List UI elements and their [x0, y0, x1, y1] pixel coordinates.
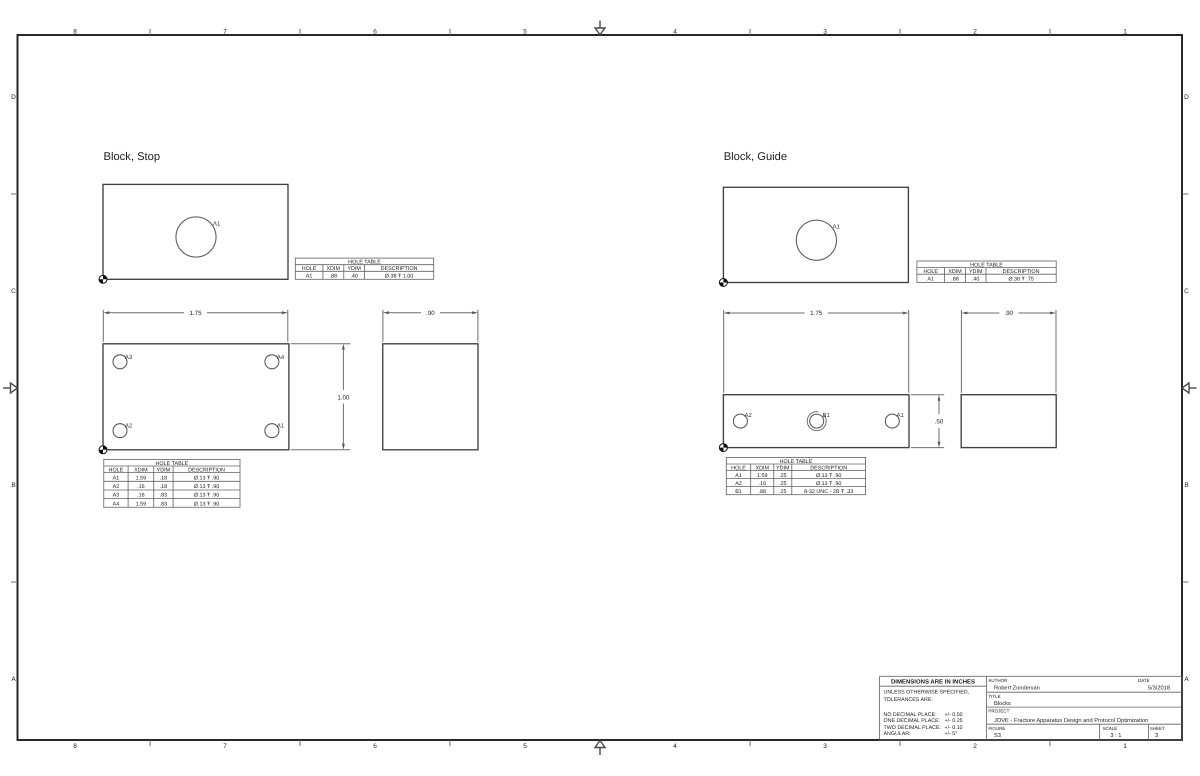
svg-text:A: A — [1184, 676, 1189, 683]
svg-text:+/- 5°: +/- 5° — [945, 731, 958, 737]
svg-text:XDIM: XDIM — [948, 269, 962, 275]
svg-text:Blocks: Blocks — [994, 700, 1011, 707]
svg-text:A1: A1 — [833, 223, 841, 230]
svg-text:A4: A4 — [277, 354, 285, 361]
svg-text:.50: .50 — [935, 419, 944, 426]
svg-text:.40: .40 — [350, 274, 358, 280]
svg-text:.25: .25 — [779, 473, 787, 479]
svg-text:6: 6 — [373, 29, 377, 36]
svg-text:HOLE: HOLE — [923, 269, 938, 275]
svg-text:1: 1 — [1123, 29, 1127, 36]
svg-text:SHEET: SHEET — [1150, 726, 1165, 731]
svg-text:6: 6 — [373, 743, 377, 750]
svg-text:.90: .90 — [426, 310, 435, 317]
svg-text:Ø.13 Ŧ .90: Ø.13 Ŧ .90 — [194, 493, 219, 499]
svg-text:Ø.13 Ŧ .90: Ø.13 Ŧ .90 — [816, 473, 841, 479]
svg-text:1: 1 — [1123, 743, 1127, 750]
svg-text:Robert Zondervan: Robert Zondervan — [994, 685, 1040, 692]
svg-text:HOLE TABLE: HOLE TABLE — [780, 459, 813, 465]
svg-text:A1: A1 — [306, 274, 313, 280]
svg-text:1.59: 1.59 — [136, 475, 147, 481]
svg-text:A2: A2 — [113, 484, 120, 490]
svg-text:.88: .88 — [951, 277, 959, 283]
svg-text:YDIM: YDIM — [969, 269, 983, 275]
svg-text:B1: B1 — [735, 489, 742, 495]
svg-text:A: A — [11, 676, 16, 683]
svg-text:7: 7 — [223, 743, 227, 750]
svg-text:5/3/2018: 5/3/2018 — [1148, 685, 1170, 692]
svg-text:DESCRIPTION: DESCRIPTION — [188, 468, 225, 474]
svg-text:SCALE: SCALE — [1103, 726, 1118, 731]
svg-text:Ø.13 Ŧ .90: Ø.13 Ŧ .90 — [194, 501, 219, 507]
svg-text:HOLE: HOLE — [731, 465, 746, 471]
svg-text:A3: A3 — [125, 354, 133, 361]
svg-text:C: C — [1184, 288, 1189, 295]
svg-text:TWO DECIMAL PLACE:: TWO DECIMAL PLACE: — [884, 725, 942, 731]
svg-text:+/- 0.50: +/- 0.50 — [945, 712, 963, 718]
svg-text:1.59: 1.59 — [136, 501, 147, 507]
svg-text:S3: S3 — [994, 733, 1001, 739]
svg-text:Ø.38 Ŧ 1.00: Ø.38 Ŧ 1.00 — [385, 274, 413, 280]
svg-text:3: 3 — [823, 29, 827, 36]
svg-text:3 : 1: 3 : 1 — [1110, 733, 1121, 739]
svg-text:2: 2 — [973, 29, 977, 36]
svg-text:Block, Guide: Block, Guide — [724, 151, 787, 163]
svg-text:7: 7 — [223, 29, 227, 36]
svg-text:.25: .25 — [779, 481, 787, 487]
svg-text:1.75: 1.75 — [189, 310, 202, 317]
svg-text:1.00: 1.00 — [337, 395, 350, 402]
svg-text:A1: A1 — [113, 475, 120, 481]
svg-text:1.75: 1.75 — [810, 310, 823, 317]
svg-text:A1: A1 — [897, 412, 905, 419]
svg-text:.88: .88 — [330, 274, 338, 280]
svg-text:Block, Stop: Block, Stop — [104, 151, 161, 163]
svg-text:DESCRIPTION: DESCRIPTION — [1003, 269, 1040, 275]
svg-text:HOLE TABLE: HOLE TABLE — [348, 260, 381, 266]
svg-text:PROJECT: PROJECT — [988, 709, 1009, 714]
svg-text:C: C — [11, 288, 16, 295]
svg-text:ONE DECIMAL PLACE:: ONE DECIMAL PLACE: — [884, 718, 941, 724]
svg-text:.18: .18 — [160, 475, 168, 481]
svg-text:5: 5 — [523, 743, 527, 750]
svg-text:YDIM: YDIM — [157, 468, 171, 474]
svg-text:8: 8 — [73, 29, 77, 36]
svg-text:D: D — [11, 94, 16, 101]
svg-text:4: 4 — [673, 29, 677, 36]
svg-text:UNLESS OTHERWISE SPECIFIED,: UNLESS OTHERWISE SPECIFIED, — [884, 690, 970, 696]
svg-text:+/- 0.25: +/- 0.25 — [945, 718, 963, 724]
svg-text:XDIM: XDIM — [756, 465, 770, 471]
svg-text:.83: .83 — [160, 493, 168, 499]
svg-text:D: D — [1184, 94, 1189, 101]
svg-text:A4: A4 — [113, 501, 120, 507]
svg-text:.83: .83 — [160, 501, 168, 507]
svg-text:HOLE: HOLE — [302, 266, 317, 272]
svg-text:8-32 UNC - 2B Ŧ .33: 8-32 UNC - 2B Ŧ .33 — [804, 489, 853, 495]
svg-text:5: 5 — [523, 29, 527, 36]
svg-text:TOLERANCES ARE:: TOLERANCES ARE: — [884, 697, 933, 703]
svg-text:+/- 0.10: +/- 0.10 — [945, 725, 963, 731]
svg-text:XDIM: XDIM — [327, 266, 341, 272]
svg-text:Ø.13 Ŧ .90: Ø.13 Ŧ .90 — [194, 484, 219, 490]
svg-text:DATE: DATE — [1138, 678, 1150, 683]
svg-text:NO DECIMAL PLACE:: NO DECIMAL PLACE: — [884, 712, 937, 718]
svg-text:YDIM: YDIM — [776, 465, 790, 471]
svg-text:A2: A2 — [745, 412, 753, 419]
svg-text:A1: A1 — [735, 473, 742, 479]
svg-text:ANGULAR:: ANGULAR: — [884, 731, 911, 737]
svg-text:4: 4 — [673, 743, 677, 750]
svg-text:AUTHOR: AUTHOR — [988, 678, 1008, 683]
svg-text:3: 3 — [1155, 733, 1158, 739]
svg-text:.16: .16 — [137, 484, 145, 490]
svg-text:TITLE: TITLE — [988, 694, 1000, 699]
svg-text:Ø.13 Ŧ .90: Ø.13 Ŧ .90 — [816, 481, 841, 487]
svg-text:.90: .90 — [1004, 310, 1013, 317]
svg-text:.40: .40 — [972, 277, 980, 283]
svg-text:A1: A1 — [927, 277, 934, 283]
svg-text:1.59: 1.59 — [757, 473, 768, 479]
svg-text:A3: A3 — [113, 493, 120, 499]
svg-text:.25: .25 — [779, 489, 787, 495]
svg-text:DESCRIPTION: DESCRIPTION — [381, 266, 418, 272]
svg-text:FIGURE: FIGURE — [988, 726, 1005, 731]
svg-text:Ø.13 Ŧ .90: Ø.13 Ŧ .90 — [194, 475, 219, 481]
svg-text:8: 8 — [73, 743, 77, 750]
svg-text:A1: A1 — [277, 423, 285, 430]
svg-text:HOLE: HOLE — [109, 468, 124, 474]
svg-text:.16: .16 — [759, 481, 767, 487]
svg-text:DIMENSIONS ARE IN INCHES: DIMENSIONS ARE IN INCHES — [891, 679, 975, 686]
svg-text:A1: A1 — [213, 221, 221, 228]
svg-text:2: 2 — [973, 743, 977, 750]
svg-text:.88: .88 — [759, 489, 767, 495]
svg-text:.18: .18 — [160, 484, 168, 490]
svg-text:JOVE - Fracture Apparatus Desi: JOVE - Fracture Apparatus Design and Pro… — [994, 717, 1148, 724]
svg-text:A2: A2 — [735, 481, 742, 487]
svg-text:B: B — [11, 482, 15, 489]
svg-text:YDIM: YDIM — [347, 266, 361, 272]
svg-text:B: B — [1184, 482, 1188, 489]
svg-text:DESCRIPTION: DESCRIPTION — [810, 465, 847, 471]
svg-text:A2: A2 — [125, 423, 133, 430]
svg-text:Ø.38 Ŧ .75: Ø.38 Ŧ .75 — [1008, 277, 1033, 283]
svg-text:3: 3 — [823, 743, 827, 750]
svg-text:HOLE TABLE: HOLE TABLE — [970, 263, 1003, 269]
svg-text:B1: B1 — [823, 412, 831, 419]
svg-text:HOLE TABLE: HOLE TABLE — [156, 461, 189, 467]
svg-text:.16: .16 — [137, 493, 145, 499]
svg-text:XDIM: XDIM — [134, 468, 148, 474]
